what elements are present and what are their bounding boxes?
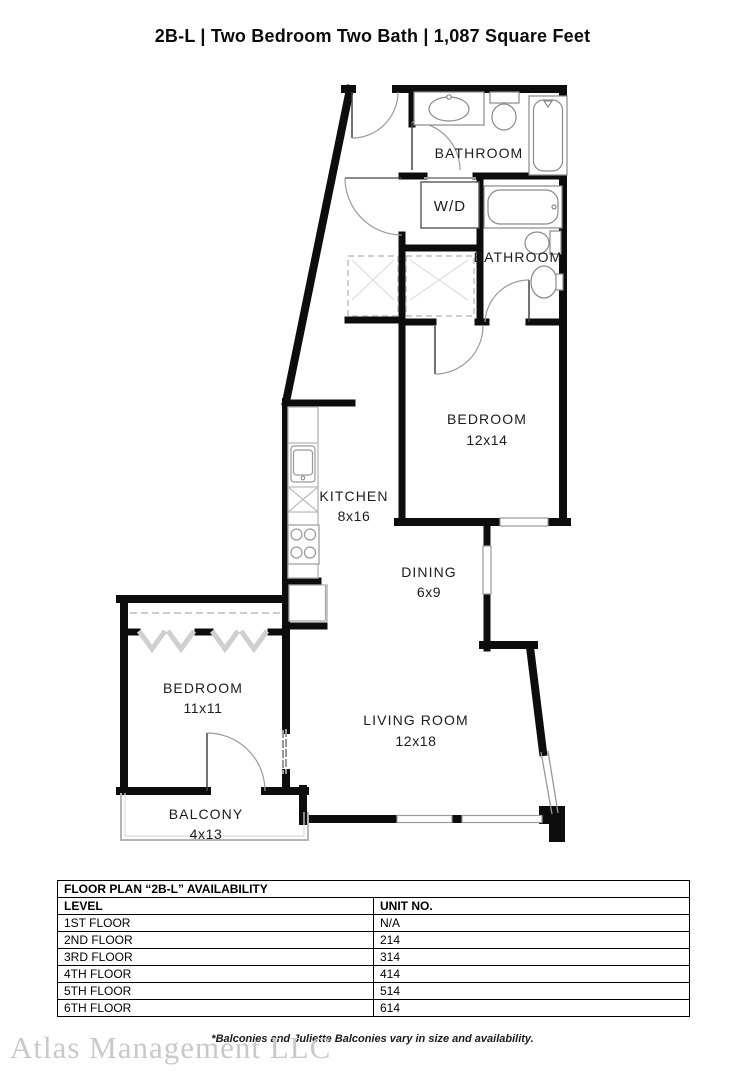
room-label-bedroom-2: BEDROOM bbox=[163, 680, 243, 696]
column-header-unit: UNIT NO. bbox=[374, 898, 690, 915]
table-header-row: LEVEL UNIT NO. bbox=[58, 898, 690, 915]
room-dims-bedroom-1: 12x14 bbox=[466, 432, 507, 448]
hall-closets bbox=[348, 256, 474, 316]
floor-plan-drawing: BATHROOM W/D BATHROOM BEDROOM 12x14 KITC… bbox=[0, 0, 745, 870]
window-living-1 bbox=[397, 816, 452, 823]
level-cell: 3RD FLOOR bbox=[58, 949, 374, 966]
table-row: 3RD FLOOR 314 bbox=[58, 949, 690, 966]
entry-door bbox=[352, 92, 398, 138]
table-row: 2ND FLOOR 214 bbox=[58, 932, 690, 949]
room-label-balcony: BALCONY bbox=[169, 806, 244, 822]
bedroom1-door bbox=[435, 326, 483, 374]
unit-cell: 414 bbox=[374, 966, 690, 983]
room-dims-dining: 6x9 bbox=[417, 584, 441, 600]
room-label-bedroom-1: BEDROOM bbox=[447, 411, 527, 427]
table-row: 1ST FLOOR N/A bbox=[58, 915, 690, 932]
table-row: 5TH FLOOR 514 bbox=[58, 983, 690, 1000]
bathroom2-door bbox=[485, 280, 529, 322]
sink-2 bbox=[531, 266, 563, 298]
window-bedroom1 bbox=[500, 518, 548, 526]
table-title: FLOOR PLAN “2B-L” AVAILABILITY bbox=[58, 881, 690, 898]
fixtures bbox=[121, 92, 567, 840]
window-living-angled bbox=[541, 751, 558, 814]
room-label-living: LIVING ROOM bbox=[363, 712, 468, 728]
bedroom2-door bbox=[207, 733, 265, 791]
unit-cell: 614 bbox=[374, 1000, 690, 1017]
unit-cell: 214 bbox=[374, 932, 690, 949]
room-label-kitchen: KITCHEN bbox=[319, 488, 388, 504]
room-dims-balcony: 4x13 bbox=[190, 826, 223, 842]
unit-cell: N/A bbox=[374, 915, 690, 932]
kitchen-sink bbox=[291, 446, 315, 482]
room-label-bathroom-1: BATHROOM bbox=[435, 145, 524, 161]
level-cell: 2ND FLOOR bbox=[58, 932, 374, 949]
room-label-dining: DINING bbox=[401, 564, 457, 580]
window-dining bbox=[483, 546, 491, 594]
room-dims-bedroom-2: 11x11 bbox=[183, 700, 222, 716]
toilet-1 bbox=[490, 92, 519, 130]
company-watermark: Atlas Management LLC bbox=[10, 1030, 331, 1066]
bathtub-1 bbox=[529, 96, 567, 175]
table-row: 6TH FLOOR 614 bbox=[58, 1000, 690, 1017]
room-label-wd: W/D bbox=[434, 198, 466, 215]
pantry-closet bbox=[289, 585, 327, 621]
hall-door bbox=[345, 178, 402, 235]
availability-table: FLOOR PLAN “2B-L” AVAILABILITY LEVEL UNI… bbox=[57, 880, 690, 1017]
column-header-level: LEVEL bbox=[58, 898, 374, 915]
level-cell: 5TH FLOOR bbox=[58, 983, 374, 1000]
level-cell: 1ST FLOOR bbox=[58, 915, 374, 932]
room-dims-kitchen: 8x16 bbox=[338, 508, 371, 524]
floor-plan-page: 2B-L | Two Bedroom Two Bath | 1,087 Squa… bbox=[0, 0, 745, 1080]
stove bbox=[288, 525, 319, 564]
room-dims-living: 12x18 bbox=[395, 733, 436, 749]
level-cell: 6TH FLOOR bbox=[58, 1000, 374, 1017]
unit-cell: 514 bbox=[374, 983, 690, 1000]
table-title-row: FLOOR PLAN “2B-L” AVAILABILITY bbox=[58, 881, 690, 898]
level-cell: 4TH FLOOR bbox=[58, 966, 374, 983]
window-living-2 bbox=[462, 816, 542, 823]
room-label-bathroom-2: BATHROOM bbox=[474, 249, 563, 265]
vanity-sink-1 bbox=[414, 92, 484, 125]
table-row: 4TH FLOOR 414 bbox=[58, 966, 690, 983]
room-labels: BATHROOM W/D BATHROOM BEDROOM 12x14 KITC… bbox=[163, 145, 562, 842]
unit-cell: 314 bbox=[374, 949, 690, 966]
bathtub-2 bbox=[484, 186, 562, 228]
